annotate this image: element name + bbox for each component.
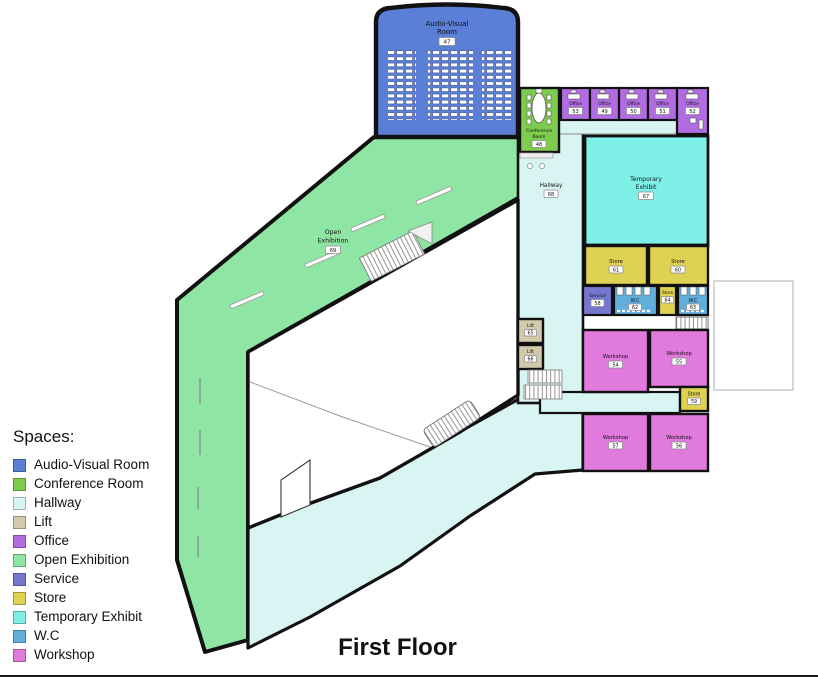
legend-swatch-audio-visual-room: [13, 459, 26, 472]
room-store-60: [649, 246, 708, 285]
legend-swatch-open-exhibition: [13, 554, 26, 567]
legend-swatch-workshop: [13, 649, 26, 662]
number-47: 47: [444, 40, 451, 46]
number-51: 51: [659, 109, 665, 115]
label-open-exhibition-2: Exhibition: [318, 238, 349, 245]
legend-label-hallway: Hallway: [34, 496, 81, 510]
adjacent-area-outline: [714, 281, 793, 390]
number-59: 59: [691, 399, 697, 405]
label-office-50: Office: [627, 101, 640, 107]
label-workshop-57: Workshop: [603, 435, 629, 441]
number-52: 52: [689, 109, 695, 115]
number-58: 58: [594, 301, 600, 307]
av-seating-left: [388, 50, 416, 120]
conference-table: [532, 93, 546, 123]
label-store-61: Store: [609, 259, 623, 265]
label-store-64: Store: [662, 290, 673, 295]
label-conference-2: Room: [532, 134, 546, 140]
label-audio-visual-2: Room: [437, 28, 457, 36]
hallway-sink-2: [539, 163, 544, 168]
number-55: 55: [676, 360, 682, 366]
legend-item-temporary-exhibit: Temporary Exhibit: [13, 610, 203, 624]
label-office-53: Office: [569, 101, 582, 107]
number-48: 48: [536, 142, 542, 148]
stairs-near-lifts-lower: [524, 385, 562, 399]
legend-label-store: Store: [34, 591, 66, 605]
legend-swatch-temporary-exhibit: [13, 611, 26, 624]
stairs-near-wc63: [676, 317, 708, 329]
number-66: 66: [527, 357, 533, 363]
number-69: 69: [330, 248, 336, 254]
legend-swatch-office: [13, 535, 26, 548]
label-wc-62: W.C: [630, 298, 640, 304]
legend-swatch-conference-room: [13, 478, 26, 491]
hallway-sink-1: [527, 163, 532, 168]
label-store-59: Store: [688, 392, 701, 398]
av-seating-right: [482, 50, 512, 120]
label-workshop-55: Workshop: [666, 351, 692, 357]
number-65: 65: [527, 331, 533, 337]
number-53: 53: [572, 109, 578, 115]
legend-item-hallway: Hallway: [13, 496, 203, 510]
legend-item-service: Service: [13, 572, 203, 586]
legend-label-temporary-exhibit: Temporary Exhibit: [34, 610, 142, 624]
legend-item-office: Office: [13, 534, 203, 548]
room-store-61: [585, 246, 647, 285]
number-60: 60: [675, 268, 681, 274]
number-63: 63: [690, 305, 696, 311]
label-office-51: Office: [656, 101, 669, 107]
number-68: 68: [548, 192, 554, 198]
legend-item-audio-visual-room: Audio-Visual Room: [13, 458, 203, 472]
legend-swatch-store: [13, 592, 26, 605]
av-seating-center: [428, 50, 473, 120]
legend-title: Spaces:: [13, 427, 203, 447]
legend-label-lift: Lift: [34, 515, 52, 529]
label-workshop-54: Workshop: [603, 354, 629, 360]
label-temporary-exhibit: Temporary: [629, 176, 662, 183]
legend-swatch-hallway: [13, 497, 26, 510]
number-50: 50: [630, 109, 636, 115]
label-temporary-exhibit-2: Exhibit: [636, 184, 657, 191]
legend-item-open-exhibition: Open Exhibition: [13, 553, 203, 567]
stairs-near-lifts-upper: [528, 370, 562, 383]
legend-label-conference-room: Conference Room: [34, 477, 144, 491]
label-workshop-56: Workshop: [666, 435, 692, 441]
hallway-counter: [520, 153, 553, 158]
number-64: 64: [664, 298, 670, 304]
number-57: 57: [612, 444, 618, 450]
label-hallway-68: Hallway: [540, 183, 563, 189]
legend-swatch-lift: [13, 516, 26, 529]
legend-label-audio-visual-room: Audio-Visual Room: [34, 458, 149, 472]
legend-swatch-wc: [13, 630, 26, 643]
number-61: 61: [613, 268, 619, 274]
legend-item-conference-room: Conference Room: [13, 477, 203, 491]
legend-item-workshop: Workshop: [13, 648, 203, 662]
legend-label-open-exhibition: Open Exhibition: [34, 553, 129, 567]
legend-swatch-service: [13, 573, 26, 586]
label-service-58: Service: [589, 293, 606, 299]
label-office-49: Office: [598, 101, 611, 107]
legend-label-office: Office: [34, 534, 69, 548]
legend-label-workshop: Workshop: [34, 648, 95, 662]
label-audio-visual: Audio-Visual: [425, 20, 468, 28]
legend-label-wc: W.C: [34, 629, 60, 643]
label-store-60: Store: [671, 259, 685, 265]
number-49: 49: [601, 109, 607, 115]
label-office-52: Office: [686, 101, 699, 107]
number-54: 54: [612, 363, 618, 369]
number-62: 62: [632, 305, 638, 311]
label-wc-63: W.C: [688, 298, 698, 304]
legend-item-store: Store: [13, 591, 203, 605]
number-56: 56: [676, 444, 682, 450]
legend-label-service: Service: [34, 572, 79, 586]
page-title: First Floor: [280, 634, 515, 662]
legend-item-wc: W.C: [13, 629, 203, 643]
label-lift-65: Lift: [527, 323, 534, 329]
label-lift-66: Lift: [527, 349, 534, 355]
legend: Spaces: Audio-Visual Room Conference Roo…: [13, 427, 203, 667]
corridor-offices: [551, 120, 680, 134]
label-open-exhibition: Open: [325, 229, 342, 236]
label-conference: Conference: [526, 128, 552, 134]
legend-item-lift: Lift: [13, 515, 203, 529]
number-67: 67: [643, 194, 649, 200]
